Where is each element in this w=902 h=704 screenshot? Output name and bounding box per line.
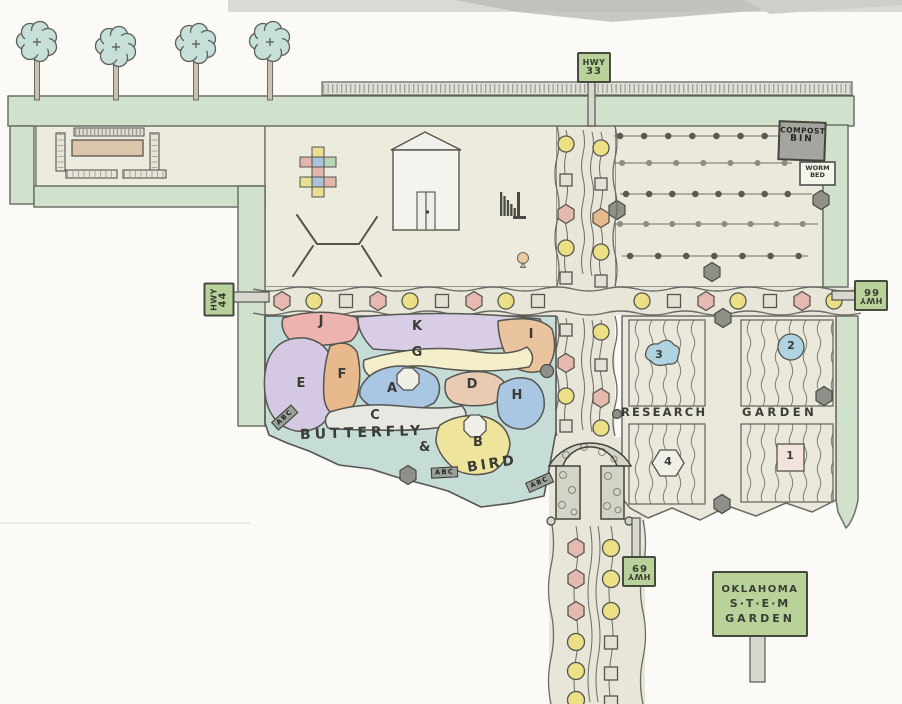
picnic-table-area <box>56 133 166 178</box>
plot-number-1: 1 <box>780 450 800 462</box>
hwy-66-sign: HWY 66 <box>854 280 888 311</box>
hwy-44-post <box>229 292 269 302</box>
hwy-69-sign: HWY 69 <box>622 556 656 587</box>
tree-icon <box>250 22 290 62</box>
compost-bin-label: COMPOST BIN <box>780 126 825 146</box>
worm-line2: BED <box>801 172 834 179</box>
bed-label-D: D <box>462 378 482 392</box>
worm-bed-label: WORM BED <box>801 165 834 179</box>
hwy-69-number: 69 <box>631 563 647 573</box>
garden-plan-canvas: HWY 33 HWY 44 HWY 66 HWY 69 COMPOST BIN … <box>0 0 902 704</box>
stem-sign-post <box>750 632 765 682</box>
stem-sign-line3: GARDEN <box>725 612 795 625</box>
plot-number-2: 2 <box>781 340 801 352</box>
hwy-44-sign: HWY 44 <box>204 283 235 317</box>
left-hedge <box>10 126 34 204</box>
bed-H <box>497 378 544 429</box>
shed-door <box>417 192 426 230</box>
ampersand-caption: & <box>419 441 430 455</box>
bed-label-B: B <box>468 436 488 450</box>
tree-icon <box>176 24 216 64</box>
hwy-33-sign: HWY 33 <box>577 52 611 83</box>
tree-icon <box>96 27 136 67</box>
bed-label-G: G <box>407 346 427 360</box>
hwy-69-label: HWY <box>628 573 651 581</box>
hwy-44-number: 44 <box>218 292 228 308</box>
stem-garden-sign: OKLAHOMA S·T·E·M GARDEN <box>712 571 808 637</box>
bed-label-C: C <box>365 409 385 423</box>
stepping-stone <box>400 466 416 485</box>
hwy-66-number: 66 <box>863 287 879 297</box>
top-hedge <box>8 96 854 126</box>
bed-label-A: A <box>382 382 402 396</box>
abc-marker: ABC <box>431 466 459 478</box>
bed-label-E: E <box>291 377 311 391</box>
southeast-hedge <box>836 316 858 528</box>
hwy-33-number: 33 <box>586 67 602 77</box>
garden-caption: GARDEN <box>742 406 817 419</box>
butterfly-bird-garden <box>264 312 556 507</box>
research-caption: RESEARCH <box>621 406 707 419</box>
tree-icon <box>17 22 57 62</box>
street-trees <box>17 22 290 101</box>
stem-sign-line2: S·T·E·M <box>730 597 790 610</box>
bed-label-I: I <box>521 328 541 342</box>
bed-label-J: J <box>311 315 331 329</box>
west-hedge <box>238 186 265 426</box>
stem-sign-line1: OKLAHOMA <box>722 584 799 595</box>
bed-label-K: K <box>407 320 427 334</box>
compost-line2: BIN <box>780 134 824 145</box>
plot-number-3: 3 <box>649 349 669 361</box>
stepping-stone <box>541 365 554 378</box>
stepping-stone <box>464 415 486 437</box>
hwy-33-post <box>588 80 595 126</box>
plot-number-4: 4 <box>658 456 678 468</box>
below-picnic-hedge <box>34 186 265 207</box>
hwy-69-post <box>632 518 640 558</box>
shed <box>391 132 461 230</box>
bed-label-H: H <box>507 389 527 403</box>
bed-label-F: F <box>332 368 352 382</box>
picnic-table <box>72 140 143 156</box>
hwy-66-label: HWY <box>860 297 883 305</box>
